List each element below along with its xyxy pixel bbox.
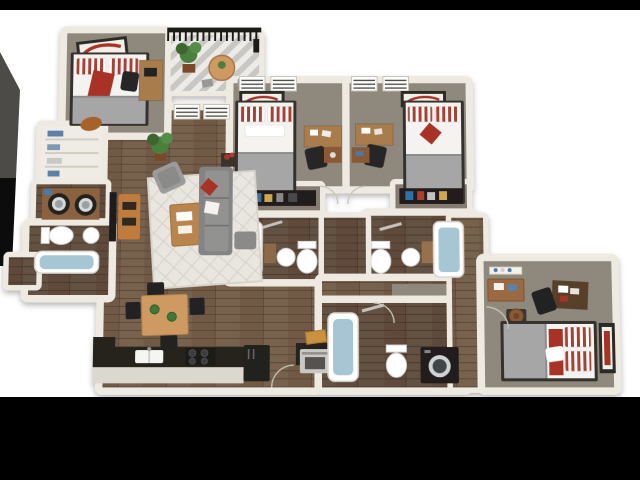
dining-chair (160, 335, 177, 350)
wall-shelf (490, 267, 522, 274)
folded-clothes (427, 192, 435, 200)
desk (139, 60, 163, 100)
room-laundry (42, 188, 100, 219)
dresser (488, 279, 524, 301)
toilet-icon (371, 241, 391, 273)
towels (47, 158, 62, 164)
nightstand (352, 147, 370, 163)
window-icon (383, 77, 409, 91)
window-icon (271, 77, 297, 91)
cutting-board (305, 330, 327, 345)
sink (83, 228, 99, 244)
plate (150, 305, 159, 314)
folded-clothes (288, 193, 297, 202)
counter-run (93, 347, 244, 367)
desk (356, 124, 394, 145)
hall-center-floor (324, 218, 366, 283)
cabinet-front (92, 367, 243, 383)
folded-clothes (276, 193, 283, 202)
desk-chair (120, 71, 140, 92)
striped-pillow (565, 351, 592, 371)
window-icon (351, 77, 377, 91)
white-pillow (204, 201, 220, 215)
refrigerator-icon (243, 345, 269, 381)
sofa (198, 167, 233, 256)
folded-clothes (405, 191, 413, 200)
media-stand (118, 194, 141, 239)
room-closet-bedroom-3 (399, 188, 463, 204)
sink (277, 248, 295, 266)
toilet-icon (297, 241, 317, 273)
window-icon (239, 77, 265, 91)
detergent-box (44, 189, 52, 195)
vanity (422, 241, 434, 263)
folded-clothes (417, 191, 424, 200)
folded-clothes (264, 194, 272, 202)
vanity (264, 243, 276, 263)
window-icon (174, 104, 200, 119)
cooktop (185, 348, 215, 365)
folded-clothes (439, 191, 447, 200)
towels (47, 131, 63, 137)
sink (402, 248, 420, 266)
bathroom-1-bumpout (8, 257, 37, 285)
plate (167, 312, 176, 321)
towels (48, 171, 60, 177)
bistro-table (209, 55, 235, 80)
bed (500, 321, 598, 381)
nightstand (324, 147, 342, 163)
tv-icon (109, 192, 117, 241)
dining-chair (125, 302, 140, 320)
floorplan-canvas: 3D cutaway floor plan rendering of a fou… (0, 0, 640, 480)
railing-side (253, 39, 259, 52)
desk (304, 126, 342, 147)
white-pillow (545, 346, 565, 362)
railing-slats (167, 32, 261, 41)
dining-chair (147, 282, 164, 297)
bath-water (438, 228, 459, 273)
wall-art-icon (599, 323, 616, 373)
coffee-table (170, 203, 202, 246)
side-table (221, 153, 237, 167)
window-icon (204, 104, 230, 119)
floorplan-render: 3D cutaway floor plan rendering of a fou… (0, 3, 640, 477)
desk (552, 280, 589, 310)
toilet-icon (386, 345, 406, 377)
towels (47, 144, 60, 150)
bed (69, 52, 149, 125)
washer-icon (420, 347, 459, 383)
ottoman (234, 232, 256, 250)
bath-water (333, 319, 353, 375)
striped-pillow (565, 327, 591, 347)
bath-water (40, 255, 94, 269)
dining-table (141, 294, 188, 336)
toilet-icon (41, 227, 73, 245)
railing (167, 28, 261, 33)
dining-chair (189, 298, 204, 315)
